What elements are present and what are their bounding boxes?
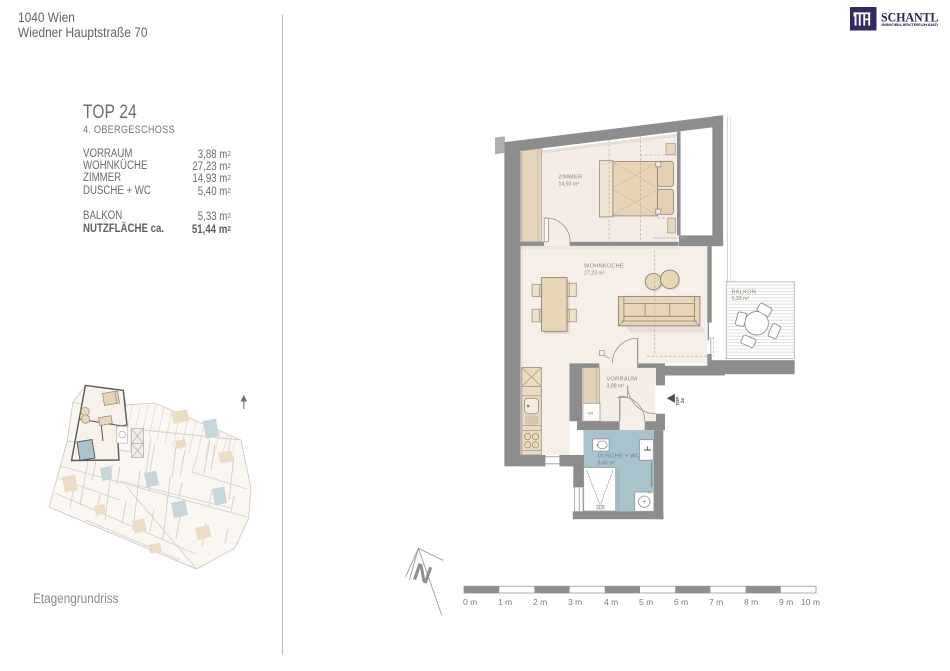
- svg-text:3 m: 3 m: [568, 597, 582, 607]
- svg-text:DUSCHE + WC: DUSCHE + WC: [598, 454, 641, 460]
- svg-text:7 m: 7 m: [709, 597, 723, 607]
- svg-text:2 m: 2 m: [533, 597, 547, 607]
- svg-text:0 m: 0 m: [463, 597, 477, 607]
- svg-text:5,40 m²: 5,40 m²: [598, 461, 616, 467]
- svg-text:10 m: 10 m: [801, 597, 820, 607]
- svg-text:9 m: 9 m: [779, 597, 793, 607]
- svg-text:WOHNKÜCHE: WOHNKÜCHE: [584, 263, 624, 270]
- svg-text:5,33 m²: 5,33 m²: [732, 296, 750, 302]
- svg-text:ZIMMER: ZIMMER: [559, 175, 583, 181]
- svg-text:K.: K.: [649, 491, 652, 495]
- svg-text:8 m: 8 m: [744, 597, 758, 607]
- svg-text:6 m: 6 m: [674, 597, 688, 607]
- svg-text:14,93 m²: 14,93 m²: [559, 182, 580, 188]
- svg-text:27,23 m²: 27,23 m²: [584, 271, 605, 277]
- svg-text:3,88 m²: 3,88 m²: [607, 384, 625, 390]
- svg-text:BALKON: BALKON: [732, 289, 757, 295]
- svg-text:1 m: 1 m: [498, 597, 512, 607]
- svg-text:VORRAUM: VORRAUM: [607, 377, 638, 383]
- svg-text:24: 24: [680, 398, 685, 403]
- svg-text:4 m: 4 m: [604, 597, 618, 607]
- svg-text:GRUNDRISS UNMASSST.: GRUNDRISS UNMASSST.: [653, 236, 688, 240]
- svg-text:WM: WM: [588, 412, 594, 416]
- svg-text:5 m: 5 m: [639, 597, 653, 607]
